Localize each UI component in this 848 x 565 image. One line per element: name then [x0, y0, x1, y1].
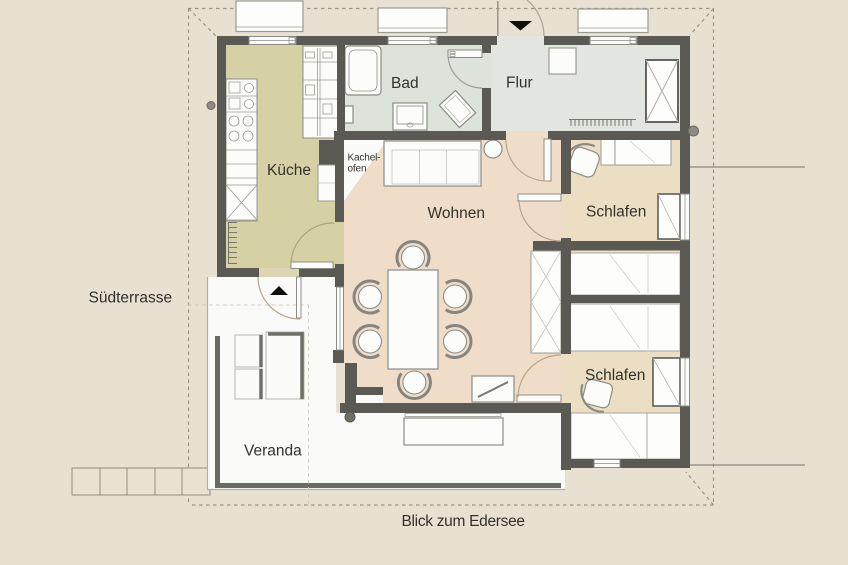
svg-text:Schlafen: Schlafen — [586, 204, 646, 221]
svg-text:Küche: Küche — [267, 162, 311, 179]
svg-text:Schlafen: Schlafen — [585, 367, 645, 384]
svg-text:Kachel-: Kachel- — [348, 153, 381, 164]
svg-text:ofen: ofen — [348, 164, 367, 175]
svg-text:Bad: Bad — [391, 75, 419, 92]
svg-text:Blick zum Edersee: Blick zum Edersee — [402, 513, 525, 530]
svg-text:Veranda: Veranda — [244, 443, 302, 460]
svg-text:Flur: Flur — [506, 75, 533, 92]
svg-text:Südterrasse: Südterrasse — [89, 290, 173, 307]
svg-text:Wohnen: Wohnen — [428, 205, 485, 222]
